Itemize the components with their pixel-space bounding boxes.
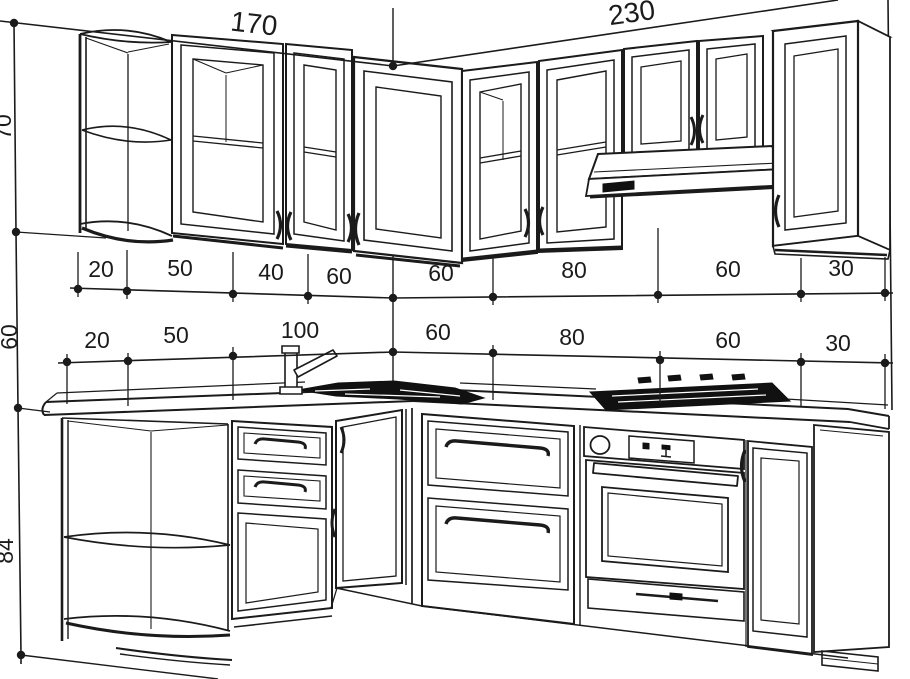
base-corner-door	[331, 408, 412, 608]
dim-upper-5: 60	[428, 260, 454, 286]
burner-icon	[638, 374, 745, 383]
dim-lower-2: 50	[163, 322, 189, 348]
dim-left-height-base: 84	[0, 538, 18, 564]
kitchen-technical-drawing: 170 230 20 50 40 60 60 80 60 30 20 50 10…	[0, 0, 910, 679]
dim-upper-4: 60	[326, 263, 352, 289]
upper-glass-cabinet-b	[539, 50, 622, 252]
door-handle-icon	[332, 509, 335, 537]
base-side-panel	[814, 425, 889, 671]
base-cabinets	[21, 408, 889, 679]
dim-lower-4: 60	[425, 319, 451, 345]
upper-cabinets	[80, 21, 890, 266]
dim-lower-3: 100	[281, 317, 319, 343]
base-drawer-stack-60	[422, 414, 574, 624]
upper-corner-cabinet	[354, 57, 462, 266]
dim-left-gap: 60	[0, 324, 22, 350]
upper-glass-cabinet-a	[462, 62, 537, 261]
range-hood	[586, 146, 787, 197]
dim-upper-6: 80	[561, 257, 587, 283]
dim-label-top-right: 230	[606, 0, 657, 31]
upper-glass-cabinet-40	[286, 44, 352, 252]
oven	[580, 425, 746, 647]
dim-lower-7: 30	[825, 330, 851, 356]
upper-short-cabinet-right	[699, 36, 763, 159]
dim-upper-2: 50	[167, 255, 193, 281]
sink	[298, 381, 484, 404]
upper-short-cabinet-left	[624, 41, 697, 163]
base-door-cabinet	[742, 441, 813, 655]
dim-lower-5: 80	[559, 324, 585, 350]
dim-lower-6: 60	[715, 327, 741, 353]
base-corner-open-shelf	[62, 418, 232, 665]
upper-narrow-cabinet-30	[773, 21, 890, 259]
upper-glass-cabinet-50	[172, 35, 283, 248]
dim-left-height-upper: 70	[0, 114, 16, 140]
upper-corner-open-shelf	[80, 30, 173, 242]
dim-upper-7: 60	[715, 256, 741, 282]
dim-upper-1: 20	[88, 256, 114, 282]
oven-knob-icon	[591, 436, 610, 454]
dim-lower-1: 20	[84, 327, 110, 353]
dim-upper-3: 40	[258, 259, 284, 285]
base-drawer-unit-50	[232, 421, 332, 627]
dim-upper-8: 30	[828, 255, 854, 281]
dim-label-top-left: 170	[229, 6, 279, 42]
